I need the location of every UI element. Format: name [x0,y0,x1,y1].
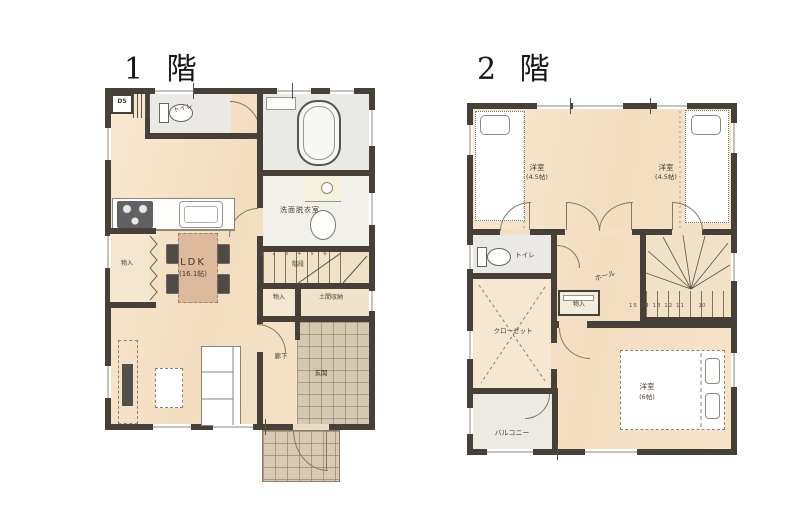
floor2-detail-svg [467,103,737,455]
bifold-door-marks [150,236,157,300]
floor1-plan: トイレ DS 洗面脱衣室 1 2 3 4 5 6 階段 物入 [105,88,375,430]
stair-diagonal-lines [297,253,367,284]
floor2-plan: 洋室 (4.5帖) 洋室 (4.5帖) トイレ ホール 物入 ク [467,103,737,455]
sofa-cushion-lines [202,347,233,425]
closet-cross-lines [479,285,545,383]
floor2-title: 2 階 [477,44,557,88]
floor1-title: 1 階 [124,44,204,88]
stair-winder-lines [646,235,730,289]
floor1-detail-svg [105,88,375,480]
room-partition-dotted-lines [524,111,680,229]
floorplan-page: 1 階 2 階 トイレ DS 洗面脱衣室 [0,0,800,512]
